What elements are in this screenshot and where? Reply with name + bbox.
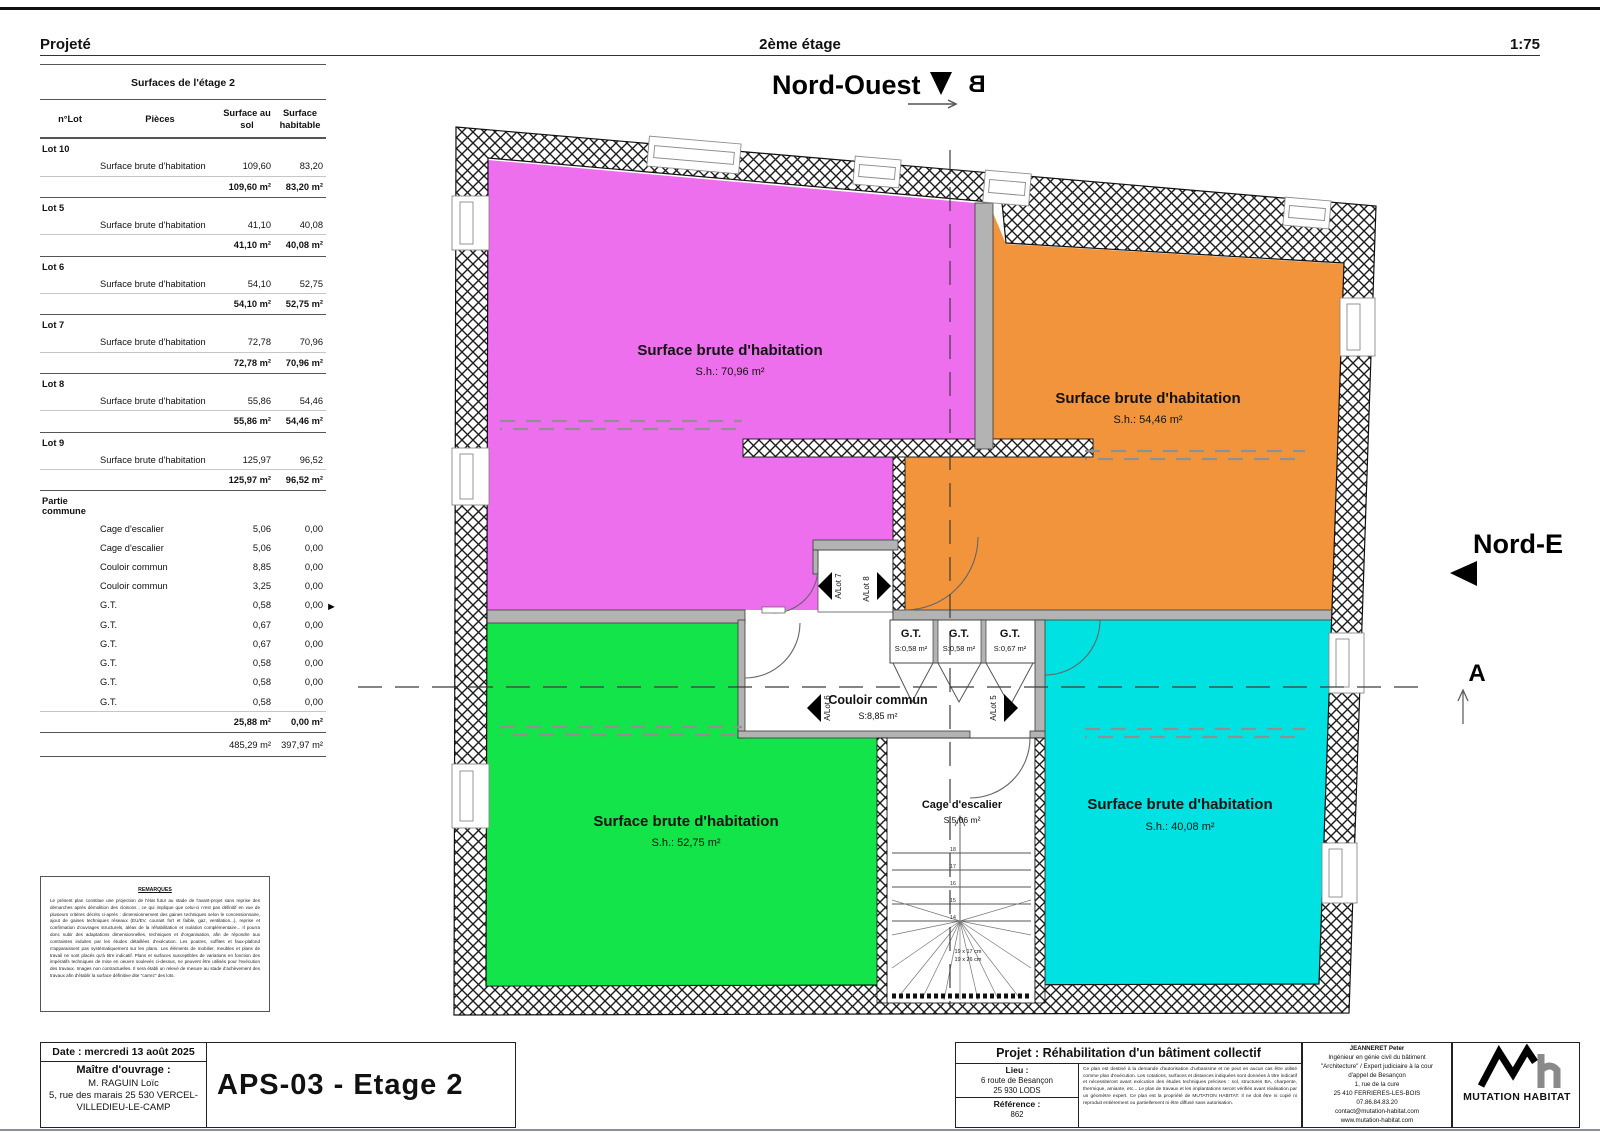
engineer-line: 07.86.84.83.20 — [1303, 1099, 1451, 1108]
surface-table-title: Surfaces de l'étage 2 — [40, 64, 326, 100]
owner-label: Maître d'ouvrage : — [41, 1064, 206, 1078]
engineer-name: JEANNERET Peter — [1303, 1045, 1451, 1054]
project-title: Projet : Réhabilitation d'un bâtiment co… — [956, 1043, 1301, 1064]
stair-step-number: 16 — [950, 881, 956, 887]
cell-surface-sol: 3,25 — [220, 581, 274, 591]
cell-piece: G.T. — [100, 639, 220, 649]
cell-surface-hab: 54,46 m² — [274, 416, 326, 426]
cell-surface-hab: 0,00 — [274, 639, 326, 649]
table-row: G.T. 0,58 0,00 — [40, 653, 326, 672]
table-row: 25,88 m² 0,00 m² — [40, 711, 326, 732]
cell-surface-sol: 25,88 m² — [220, 717, 274, 727]
window — [452, 764, 489, 828]
door-label-lot5: A/Lot 5 — [989, 695, 998, 721]
table-row: G.T. 0,67 0,00 — [40, 634, 326, 653]
engineer-line: 25 410 FERRIERES-LES-BOIS — [1303, 1090, 1451, 1099]
cell-surface-hab: 96,52 — [274, 455, 326, 465]
cell-surface-sol: 125,97 m² — [220, 475, 274, 485]
table-row: Cage d'escalier 5,06 0,00 — [40, 519, 326, 538]
cell-piece: G.T. — [100, 620, 220, 630]
table-row: Lot 7 — [40, 314, 326, 332]
titleblock-project: Projet : Réhabilitation d'un bâtiment co… — [955, 1042, 1302, 1128]
cell-piece: Surface brute d'habitation — [100, 161, 220, 171]
window — [452, 448, 489, 505]
cell-lot: Lot 8 — [40, 379, 100, 389]
cell-surface-sol: 55,86 — [220, 396, 274, 406]
cell-surface-hab: 0,00 — [274, 697, 326, 707]
stair-step-number: 15 — [950, 898, 956, 904]
room-lot6-area-label: S.h.: 52,75 m² — [651, 837, 720, 849]
engineer-website: www.mutation-habitat.com — [1303, 1117, 1451, 1126]
cell-surface-hab: 0,00 — [274, 620, 326, 630]
gt2-area-label: S:0,58 m² — [943, 644, 976, 653]
knee-wall-horizontal — [743, 439, 1093, 457]
door-label-lot8: A/Lot 8 — [862, 576, 871, 602]
location-line2: 25 930 LODS — [956, 1086, 1078, 1096]
table-row: Lot 6 — [40, 256, 326, 274]
stair-step-number: 18 — [950, 847, 956, 853]
titleblock-engineer: JEANNERET Peter Ingénieur en génie civil… — [1302, 1042, 1452, 1128]
logo-wordmark: MUTATION HABITAT — [1453, 1091, 1581, 1103]
cell-lot: Lot 10 — [40, 144, 100, 154]
table-row: Cage d'escalier 5,06 0,00 — [40, 538, 326, 557]
gt1-label: G.T. — [901, 628, 921, 640]
window — [1340, 298, 1375, 356]
section-a-arrow-icon — [1458, 690, 1468, 724]
stair-shaft-wall-left — [877, 738, 887, 1003]
cell-lot: Lot 5 — [40, 203, 100, 213]
cell-surface-sol: 109,60 m² — [220, 182, 274, 192]
cell-surface-hab: 52,75 m² — [274, 299, 326, 309]
cell-surface-sol: 72,78 — [220, 337, 274, 347]
cell-surface-sol: 8,85 — [220, 562, 274, 572]
table-row: 125,97 m² 96,52 m² — [40, 469, 326, 490]
cage-label: Cage d'escalier — [922, 799, 1003, 811]
reference-value: 862 — [956, 1110, 1078, 1120]
cell-surface-hab: 397,97 m² — [274, 740, 326, 750]
engineer-email: contact@mutation-habitat.com — [1303, 1108, 1451, 1117]
room-lot5-area-label: S.h.: 40,08 m² — [1145, 821, 1214, 833]
cell-surface-hab: 0,00 — [274, 677, 326, 687]
location-line1: 6 route de Besançon — [956, 1076, 1078, 1086]
col-header-pieces: Pièces — [100, 114, 220, 126]
table-row: Surface brute d'habitation 54,10 52,75 — [40, 274, 326, 293]
cell-surface-hab: 70,96 — [274, 337, 326, 347]
couloir-label: Couloir commun — [828, 693, 927, 707]
window — [452, 196, 489, 250]
cell-surface-sol: 125,97 — [220, 455, 274, 465]
cell-piece: G.T. — [100, 697, 220, 707]
reference-label: Référence : — [956, 1099, 1078, 1110]
cell-surface-hab: 0,00 — [274, 543, 326, 553]
engineer-line: "Architecture" / Expert judiciaire à la … — [1303, 1063, 1451, 1072]
gt-room-row — [890, 620, 1035, 663]
cell-surface-hab: 83,20 — [274, 161, 326, 171]
location-label: Lieu : — [956, 1065, 1078, 1076]
cell-surface-sol: 55,86 m² — [220, 416, 274, 426]
knee-wall-vertical — [893, 457, 905, 622]
sheet-title: APS-03 - Etage 2 — [207, 1043, 515, 1127]
owner-name: M. RAGUIN Loïc — [41, 1078, 206, 1090]
door-arrow-lot5 — [1004, 694, 1018, 722]
cell-surface-sol: 72,78 m² — [220, 358, 274, 368]
cell-lot: Lot 9 — [40, 438, 100, 448]
cell-piece: G.T. — [100, 677, 220, 687]
window — [983, 170, 1032, 206]
cell-surface-sol: 54,10 — [220, 279, 274, 289]
remarks-box: REMARQUES Le présent plan constitue une … — [40, 876, 270, 1012]
section-a-label: A — [1468, 660, 1485, 687]
cage-area-label: S:5,06 m² — [944, 815, 981, 825]
room-lot7-area-label: S.h.: 70,96 m² — [695, 366, 764, 378]
window — [1329, 633, 1364, 693]
door-label-lot7: A/Lot 7 — [834, 573, 843, 599]
reference-block: Référence : 862 — [956, 1098, 1078, 1127]
date-label: Date : mercredi 13 août 2025 — [41, 1043, 206, 1062]
cell-surface-hab: 0,00 — [274, 600, 326, 610]
room-lot6-area — [486, 623, 879, 985]
north-west-label: Nord-Ouest — [772, 70, 921, 100]
room-lot8-area-label: S.h.: 54,46 m² — [1113, 414, 1182, 426]
cell-piece: G.T. — [100, 600, 220, 610]
section-b-label: B — [968, 71, 985, 98]
cell-surface-sol: 0,58 — [220, 677, 274, 687]
cell-surface-hab: 0,00 — [274, 581, 326, 591]
cell-surface-sol: 109,60 — [220, 161, 274, 171]
north-east-label: Nord-E — [1473, 529, 1563, 559]
cell-surface-sol: 54,10 m² — [220, 299, 274, 309]
table-row: Surface brute d'habitation 109,60 83,20 — [40, 156, 326, 175]
gt3-label: G.T. — [1000, 628, 1020, 640]
col-header-sol: Surface au sol — [220, 108, 274, 131]
window — [1283, 197, 1331, 229]
cell-surface-sol: 41,10 m² — [220, 240, 274, 250]
table-row: Lot 5 — [40, 197, 326, 215]
gt2-label: G.T. — [949, 628, 969, 640]
stair-step-number: 17 — [950, 864, 956, 870]
stair-step-number: 14 — [950, 915, 956, 921]
cell-surface-hab: 54,46 — [274, 396, 326, 406]
north-west-triangle-icon — [930, 72, 952, 95]
surface-table-rows: Lot 10 Surface brute d'habitation 109,60… — [40, 138, 326, 756]
window — [853, 156, 901, 188]
cell-piece: Cage d'escalier — [100, 524, 220, 534]
header-rule — [40, 55, 1540, 56]
table-row: 55,86 m² 54,46 m² — [40, 410, 326, 431]
cell-piece: Surface brute d'habitation — [100, 396, 220, 406]
floor-plan: A/Lot 7 A/Lot 8 A/Lot 6 A/Lot 5 18 — [340, 58, 1600, 1040]
cell-piece: Cage d'escalier — [100, 543, 220, 553]
table-row: Partie commune — [40, 490, 326, 518]
cell-surface-sol: 0,58 — [220, 600, 274, 610]
owner-address: 5, rue des marais 25 530 VERCEL-VILLEDIE… — [41, 1090, 206, 1114]
owner-block: Maître d'ouvrage : M. RAGUIN Loïc 5, rue… — [41, 1062, 206, 1127]
cell-surface-sol: 485,29 m² — [220, 740, 274, 750]
cell-lot: Lot 7 — [40, 320, 100, 330]
surface-table-header: n°Lot Pièces Surface au sol Surface habi… — [40, 100, 326, 138]
room-lot5-label: Surface brute d'habitation — [1087, 796, 1272, 813]
cell-surface-hab: 0,00 — [274, 658, 326, 668]
cell-surface-hab: 0,00 — [274, 562, 326, 572]
cell-surface-hab: 70,96 m² — [274, 358, 326, 368]
table-row: Surface brute d'habitation 72,78 70,96 — [40, 332, 326, 351]
cell-piece: Surface brute d'habitation — [100, 220, 220, 230]
titleblock-logo: MUTATION HABITAT — [1452, 1042, 1580, 1128]
location-block: Lieu : 6 route de Besançon 25 930 LODS — [956, 1064, 1078, 1098]
titleblock-left: Date : mercredi 13 août 2025 Maître d'ou… — [40, 1042, 516, 1128]
table-side-marker: ► — [326, 601, 337, 613]
table-row: G.T. 0,58 0,00 — [40, 595, 326, 614]
table-row: 72,78 m² 70,96 m² — [40, 352, 326, 373]
col-header-lot: n°Lot — [40, 114, 100, 126]
cell-surface-sol: 0,67 — [220, 639, 274, 649]
cell-surface-sol: 0,58 — [220, 658, 274, 668]
cell-piece: Surface brute d'habitation — [100, 337, 220, 347]
cell-surface-hab: 40,08 m² — [274, 240, 326, 250]
gt1-area-label: S:0,58 m² — [895, 644, 928, 653]
cell-lot: Lot 6 — [40, 262, 100, 272]
section-b-arrow-icon — [908, 100, 956, 108]
door-arrow-lot6 — [807, 694, 821, 722]
legal-disclaimer: Ce plan est destiné à la demande d'autor… — [1079, 1064, 1301, 1127]
table-row: Lot 8 — [40, 373, 326, 391]
remarks-title: REMARQUES — [50, 887, 260, 893]
table-row: 41,10 m² 40,08 m² — [40, 234, 326, 255]
gt3-area-label: S:0,67 m² — [994, 644, 1027, 653]
room-lot7-label: Surface brute d'habitation — [637, 342, 822, 359]
sheet-top-rule — [0, 7, 1600, 10]
table-row: Lot 10 — [40, 138, 326, 156]
cell-surface-sol: 5,06 — [220, 524, 274, 534]
cell-surface-sol: 41,10 — [220, 220, 274, 230]
sheet-bottom-rule — [0, 1129, 1600, 1131]
table-row: Couloir commun 8,85 0,00 — [40, 557, 326, 576]
cell-piece: G.T. — [100, 658, 220, 668]
stair-shaft-wall-right — [1035, 738, 1045, 1003]
project-left-column: Lieu : 6 route de Besançon 25 930 LODS R… — [956, 1064, 1079, 1127]
stair-note-2: 19 x 26 cm — [955, 957, 982, 963]
window — [1322, 843, 1357, 903]
table-row: Surface brute d'habitation 125,97 96,52 — [40, 450, 326, 469]
table-row: G.T. 0,67 0,00 — [40, 615, 326, 634]
cell-piece: Couloir commun — [100, 581, 220, 591]
table-row: G.T. 0,58 0,00 — [40, 672, 326, 691]
room-lot8-label: Surface brute d'habitation — [1055, 390, 1240, 407]
stair-shaft — [887, 738, 1035, 1003]
cell-surface-hab: 83,20 m² — [274, 182, 326, 192]
table-row: Couloir commun 3,25 0,00 — [40, 576, 326, 595]
cell-surface-hab: 0,00 — [274, 524, 326, 534]
table-row: Surface brute d'habitation 55,86 54,46 — [40, 391, 326, 410]
surface-table: Surfaces de l'étage 2 n°Lot Pièces Surfa… — [40, 64, 326, 757]
scale-label: 1:75 — [1510, 36, 1540, 53]
cell-surface-sol: 0,67 — [220, 620, 274, 630]
room-lot6-label: Surface brute d'habitation — [593, 813, 778, 830]
cell-piece: Surface brute d'habitation — [100, 455, 220, 465]
table-row: 485,29 m² 397,97 m² — [40, 732, 326, 756]
engineer-line: d'appel de Besançon — [1303, 1072, 1451, 1081]
cell-surface-hab: 52,75 — [274, 279, 326, 289]
cell-piece: Couloir commun — [100, 562, 220, 572]
cell-piece: Surface brute d'habitation — [100, 279, 220, 289]
remarks-text: Le présent plan constitue une projection… — [50, 898, 260, 980]
table-row: Surface brute d'habitation 41,10 40,08 — [40, 215, 326, 234]
stair-note-1: 19 x 17 cm — [955, 949, 982, 955]
page-title: 2ème étage — [0, 36, 1600, 53]
cell-surface-hab: 0,00 m² — [274, 717, 326, 727]
cell-surface-hab: 40,08 — [274, 220, 326, 230]
cell-lot: Partie commune — [40, 496, 100, 516]
titleblock-left-column: Date : mercredi 13 août 2025 Maître d'ou… — [41, 1043, 207, 1127]
cell-surface-sol: 0,58 — [220, 697, 274, 707]
table-row: Lot 9 — [40, 432, 326, 450]
engineer-line: 1, rue de la cure — [1303, 1081, 1451, 1090]
cell-surface-sol: 5,06 — [220, 543, 274, 553]
table-row: G.T. 0,58 0,00 — [40, 692, 326, 711]
north-east-triangle-icon — [1450, 561, 1477, 586]
table-row: 109,60 m² 83,20 m² — [40, 176, 326, 197]
mutation-habitat-logo-icon — [1453, 1044, 1579, 1090]
col-header-hab: Surface habitable — [274, 108, 326, 131]
couloir-area-label: S:8,85 m² — [858, 711, 897, 721]
engineer-line: Ingénieur en génie civil du bâtiment — [1303, 1054, 1451, 1063]
table-row: 54,10 m² 52,75 m² — [40, 293, 326, 314]
cell-surface-hab: 96,52 m² — [274, 475, 326, 485]
